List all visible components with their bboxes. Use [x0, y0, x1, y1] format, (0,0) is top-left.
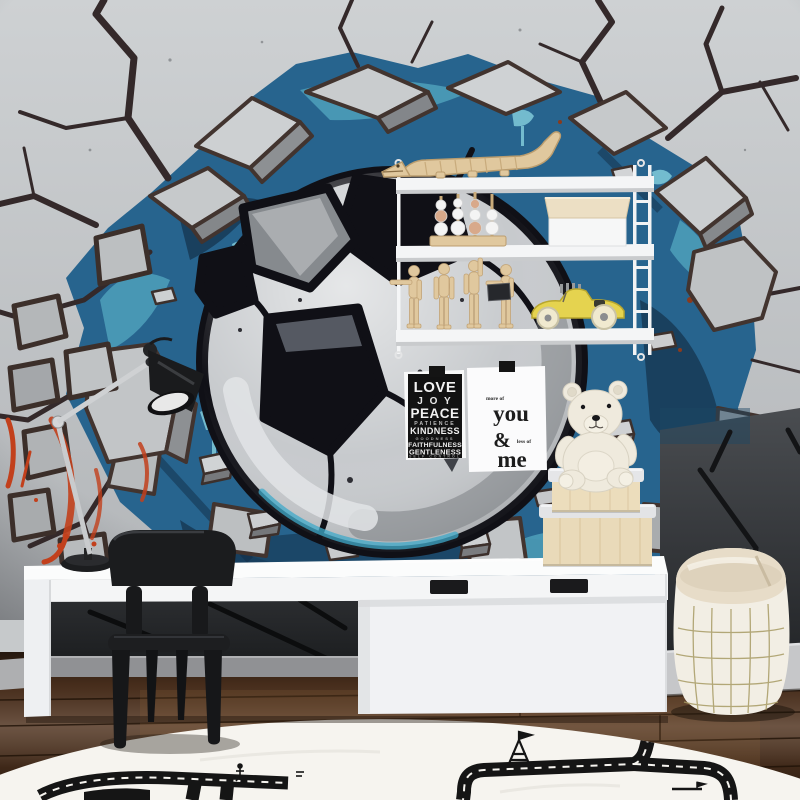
- wall-shelf: [396, 160, 655, 360]
- poster-text: you: [493, 401, 529, 426]
- poster-line: KINDNESS: [410, 426, 460, 436]
- room-illustration: LOVE J O Y PEACE PATIENCE KINDNESS GOODN…: [0, 0, 800, 800]
- posters: LOVE J O Y PEACE PATIENCE KINDNESS GOODN…: [404, 361, 547, 472]
- bear-nose: [592, 415, 600, 421]
- poster-line: SELF CONTROL: [409, 455, 461, 459]
- drawer-handle: [550, 579, 588, 593]
- lower-hat-box: [539, 504, 656, 567]
- bear-eye: [607, 404, 611, 408]
- poster-clip: [429, 366, 445, 377]
- bench-drawer-front: [358, 596, 666, 714]
- poster-line: PEACE: [410, 406, 459, 421]
- laundry-basket: [671, 548, 795, 722]
- baseboard-left: [0, 658, 26, 690]
- chair-back-post: [126, 586, 142, 638]
- kids-room-photo: LOVE J O Y PEACE PATIENCE KINDNESS GOODN…: [0, 0, 800, 800]
- bear-eye: [581, 405, 585, 409]
- toy-tablet: [487, 283, 510, 300]
- you-and-me-poster: more of you & less of me: [467, 361, 547, 472]
- poster-line: GOODNESS: [415, 436, 454, 441]
- drawer-handle: [430, 580, 468, 594]
- chair-backrest: [108, 530, 236, 586]
- poster-text: less of: [517, 439, 531, 445]
- cavity-baseboard: [50, 656, 358, 677]
- chair-back-post: [192, 586, 208, 638]
- white-storage-box: [545, 198, 630, 246]
- poster-clip: [499, 361, 515, 372]
- poster-text: me: [497, 447, 526, 472]
- poster-line: LOVE: [414, 379, 457, 396]
- love-poster: LOVE J O Y PEACE PATIENCE KINDNESS GOODN…: [404, 366, 466, 460]
- bench-left-panel: [24, 579, 50, 717]
